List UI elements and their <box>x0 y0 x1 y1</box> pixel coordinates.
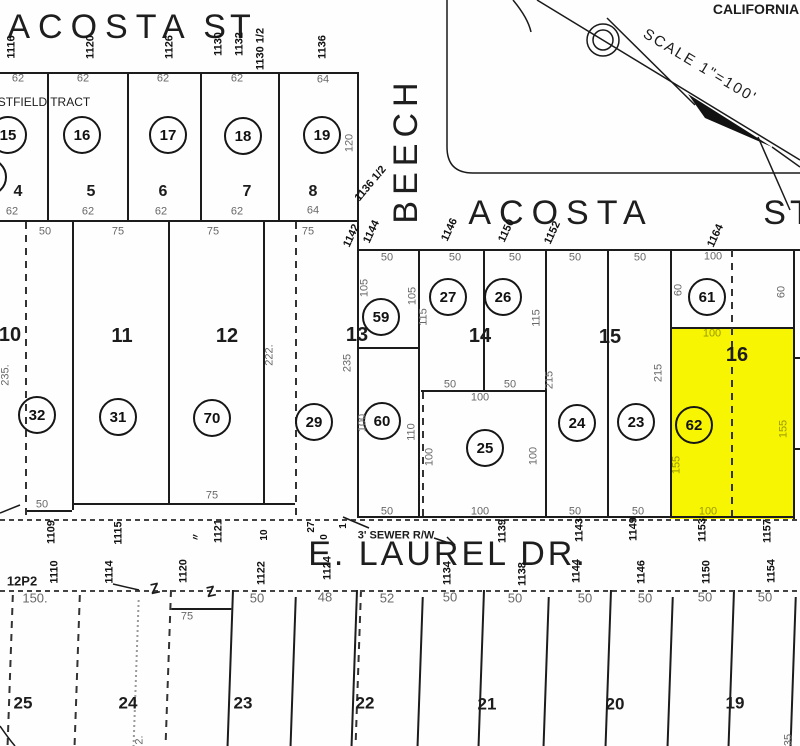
dimension-label: 155 <box>672 456 683 474</box>
dimension-label: 50 <box>36 500 48 511</box>
block-number: 22 <box>356 695 375 712</box>
block-number: 24 <box>119 695 138 712</box>
block-number: 13 <box>346 325 368 345</box>
lot-number: 6 <box>159 184 168 200</box>
address-label: 0 <box>320 534 330 540</box>
dimension-label: 100 <box>471 393 489 404</box>
dimension-label: 48 <box>318 591 332 604</box>
parcel-circle-23: 23 <box>617 403 655 441</box>
address-label: 1120 <box>86 35 97 59</box>
dimension-label: 235 <box>343 354 354 372</box>
dimension-label: 50 <box>632 507 644 518</box>
dimension-label: 75 <box>207 227 219 238</box>
parcel-circle-24: 24 <box>558 404 596 442</box>
lot-number: 7 <box>243 184 252 200</box>
address-label: 1121 <box>214 519 225 543</box>
address-label: 1144 <box>572 559 583 583</box>
dimension-label: 50 <box>569 253 581 264</box>
block-number: 19 <box>726 695 745 712</box>
address-label: 1150 <box>702 560 713 584</box>
dimension-label: 235. <box>1 364 12 385</box>
dimension-label: 100 <box>704 252 722 263</box>
dimension-label: 50 <box>449 253 461 264</box>
dimension-label: 50 <box>250 592 264 605</box>
address-label: 1115 <box>114 521 125 544</box>
dimension-label: 222. <box>265 344 276 365</box>
parcel-circle-31: 31 <box>99 398 137 436</box>
address-label: 1153 <box>698 518 709 542</box>
parcel-circle-61: 61 <box>688 278 726 316</box>
block-number: 10 <box>0 325 21 345</box>
dimension-label: 52 <box>380 592 394 605</box>
dimension-label: 75 <box>112 227 124 238</box>
dimension-label: 50 <box>638 592 652 605</box>
dimension-label: 155 <box>779 420 790 438</box>
dimension-label: 60 <box>674 284 685 296</box>
dimension-label: 50 <box>504 380 516 391</box>
block-number: 12 <box>216 326 238 346</box>
parcel-circle-25: 25 <box>466 429 504 467</box>
street-name-label: ST <box>203 10 254 44</box>
address-label: 1134 <box>443 561 454 585</box>
dimension-label: 62 <box>231 207 243 218</box>
address-label: 1122 <box>257 561 268 585</box>
address-label: 1124 <box>323 556 334 580</box>
dimension-label: 215 <box>545 371 556 389</box>
corner-diagonal <box>0 505 20 513</box>
parcel-circle-29: 29 <box>295 403 333 441</box>
address-label: 1143 <box>575 518 586 542</box>
dimension-label: 50 <box>578 592 592 605</box>
dimension-label: 62 <box>157 74 169 85</box>
dimension-label: 62 <box>231 74 243 85</box>
dimension-label: 110 <box>407 423 418 441</box>
dimension-label: 100 <box>425 448 436 466</box>
address-label: 1136 <box>318 35 329 59</box>
dimension-label: 50 <box>634 253 646 264</box>
dimension-label: 100 <box>529 447 540 465</box>
dimension-label: 62 <box>6 207 18 218</box>
parcel-circle-18: 18 <box>224 117 262 155</box>
dimension-label: 2. <box>135 735 146 744</box>
address-label: 1138 <box>518 562 529 586</box>
dimension-label: 50 <box>444 380 456 391</box>
address-label: 27 <box>307 521 317 532</box>
street-name-label: BEECH <box>389 76 423 223</box>
lot-number: 8 <box>309 184 318 200</box>
annotation-label: CALIFORNIA <box>713 2 799 16</box>
bearing-line <box>537 0 800 160</box>
block-number: 15 <box>599 327 621 347</box>
north-arrow-icon <box>688 94 800 210</box>
block-number: 14 <box>469 326 491 346</box>
dimension-label: 215 <box>654 364 665 382</box>
address-label: 1130 <box>214 32 225 56</box>
parcel-circle-32: 32 <box>18 396 56 434</box>
street-name-label: ST <box>763 196 800 230</box>
dimension-label: 50 <box>698 591 712 604</box>
dimension-label: 100 <box>358 414 369 432</box>
parcel-circle-60: 60 <box>363 402 401 440</box>
address-label: 1126 <box>165 35 176 59</box>
edge-curve-top <box>513 0 531 32</box>
address-label: 1132 <box>235 32 246 56</box>
address-label: 1130 1/2 <box>256 28 267 70</box>
leader-1114 <box>113 584 139 590</box>
dimension-label: 115 <box>419 308 430 326</box>
address-label: 1139 <box>498 519 509 543</box>
dimension-label: 64 <box>317 75 329 86</box>
dimension-label: 50 <box>39 227 51 238</box>
address-label: 1109 <box>47 520 58 544</box>
address-label: 〃 <box>192 532 201 541</box>
address-label: 1120 <box>179 559 190 583</box>
dimension-label: 62 <box>12 74 24 85</box>
dimension-label: 64 <box>307 206 319 217</box>
address-label: 1157 <box>763 519 774 543</box>
lot-number: 5 <box>87 184 96 200</box>
dimension-label: 50 <box>508 592 522 605</box>
address-label: 10 <box>260 529 270 540</box>
block-number: 23 <box>234 695 253 712</box>
address-label: 1146 <box>637 560 648 584</box>
dimension-label: 120 <box>345 134 356 152</box>
address-label: 1110 <box>50 560 61 583</box>
address-label: 1154 <box>767 559 778 583</box>
dimension-label: 75 <box>206 491 218 502</box>
dimension-label: 100 <box>471 507 489 518</box>
dimension-label: 105 <box>360 279 371 297</box>
address-label: 1 <box>339 523 349 529</box>
annotation-label: 3' SEWER R/W <box>358 531 435 542</box>
dimension-label: 100 <box>703 329 721 340</box>
block-number: 11 <box>111 326 132 346</box>
dimension-label: 150. <box>22 592 47 605</box>
edge-curve-bottom-left <box>0 726 15 746</box>
address-label: 1114 <box>105 560 116 583</box>
block-number: 25 <box>14 695 33 712</box>
dimension-label: 62 <box>155 207 167 218</box>
parcel-circle-16: 16 <box>63 116 101 154</box>
dimension-label: 115 <box>532 309 543 327</box>
dimension-label: 75 <box>181 612 193 623</box>
block-number: 20 <box>606 696 625 713</box>
dimension-label: 75 <box>302 227 314 238</box>
parcel-circle-17: 17 <box>149 116 187 154</box>
dimension-label: 62 <box>82 207 94 218</box>
dimension-label: 50 <box>758 591 772 604</box>
dimension-label: 62 <box>77 74 89 85</box>
dimension-label: 50 <box>381 507 393 518</box>
parcel-circle-27: 27 <box>429 278 467 316</box>
parcel-circle-26: 26 <box>484 278 522 316</box>
block-number: 16 <box>726 345 748 365</box>
address-label: 1116 <box>7 35 18 58</box>
dimension-label: 50 <box>569 507 581 518</box>
parcel-circle-70: 70 <box>193 399 231 437</box>
dimension-label: 105 <box>408 287 419 305</box>
dimension-label: 50 <box>381 253 393 264</box>
lot-number: 4 <box>14 184 23 200</box>
address-label: 1149 <box>629 517 640 541</box>
parcel-circle-62: 62 <box>675 406 713 444</box>
dimension-label: 100 <box>699 507 717 518</box>
annotation-label: 12P2 <box>7 575 37 588</box>
dimension-label: 50 <box>509 253 521 264</box>
annotation-label: STFIELD TRACT <box>0 96 90 108</box>
dimension-label: 60 <box>777 286 788 298</box>
dimension-label: 50 <box>443 591 457 604</box>
parcel-circle-19: 19 <box>303 116 341 154</box>
dimension-label: 35 <box>784 734 795 746</box>
parcel-map: ACOSTASTBEECHACOSTASTE. LAUREL DR.CALIFO… <box>0 0 800 746</box>
block-number: 21 <box>478 696 497 713</box>
